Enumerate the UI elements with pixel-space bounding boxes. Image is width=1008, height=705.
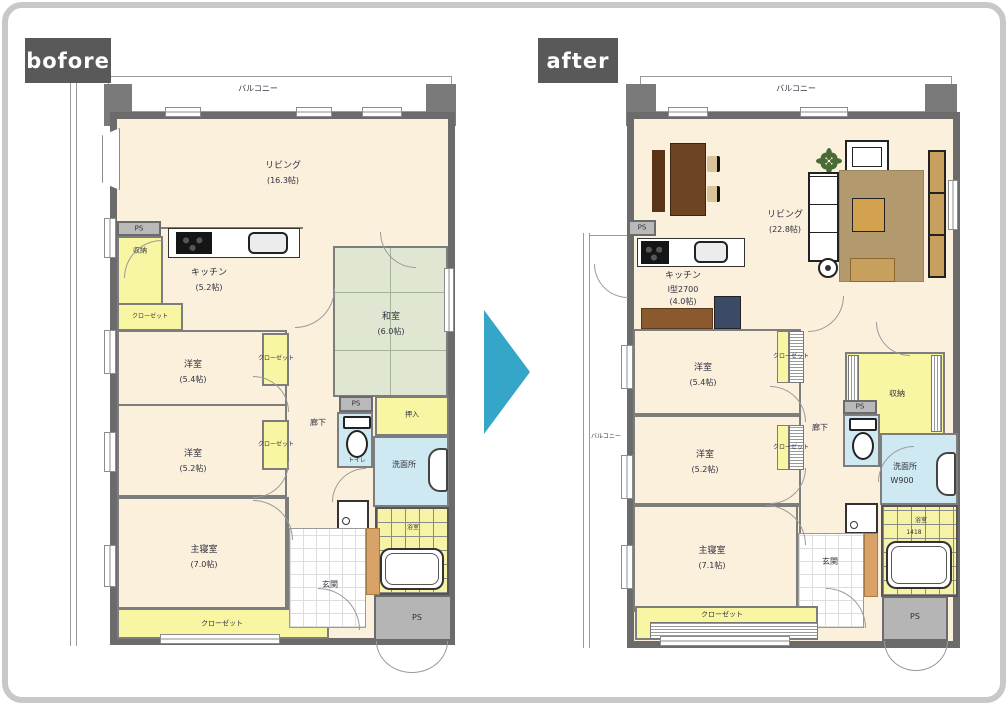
window <box>444 268 454 332</box>
ps-label: PS <box>638 223 647 232</box>
oshiire-label: 押入 <box>405 410 419 419</box>
bedroom1-label: 洋室 <box>184 360 202 372</box>
ps-label: PS <box>352 399 361 408</box>
living-area: (22.8帖) <box>769 225 801 235</box>
window <box>160 634 280 644</box>
living-label: リビング <box>265 161 301 173</box>
chair-icon <box>707 186 720 202</box>
before-badge: bofore <box>25 38 111 83</box>
bedroom2-area: (5.2帖) <box>180 464 207 474</box>
washitsu-label: 和室 <box>382 312 400 324</box>
storage-door-hatch <box>931 355 942 432</box>
kitchen-type: I型2700 <box>668 285 699 295</box>
window <box>296 107 332 117</box>
bay-window <box>102 128 120 190</box>
master-area: (7.0帖) <box>191 560 218 570</box>
window <box>621 345 633 389</box>
sofa-icon <box>808 172 839 262</box>
tatami-line <box>335 292 446 293</box>
bedroom1-area: (5.4帖) <box>180 375 207 385</box>
genkan-step <box>864 533 878 597</box>
kitchen-label: キッチン <box>665 271 701 283</box>
washroom-label: 洗面所 <box>392 460 416 470</box>
armchair-icon <box>845 140 889 174</box>
tatami-line <box>335 350 446 351</box>
ps-label: PS <box>910 612 920 622</box>
robot-vacuum-icon <box>818 258 838 278</box>
closet-label: クローゼット <box>258 441 294 449</box>
closet-label: クローゼット <box>773 353 809 361</box>
closet-label: クローゼット <box>132 313 168 321</box>
toilet-label: トイレ <box>348 457 366 465</box>
washbasin-icon <box>936 452 956 496</box>
kitchen-sink-icon <box>248 232 288 254</box>
bedroom2-label: 洋室 <box>184 449 202 461</box>
refrigerator <box>714 296 741 329</box>
hall-label: 廊下 <box>812 423 828 433</box>
washing-machine-icon <box>337 500 369 530</box>
balcony-rail-connector <box>590 235 627 236</box>
ps-label: PS <box>135 224 144 233</box>
living-label: リビング <box>767 210 803 222</box>
master-label: 主寝室 <box>190 545 217 557</box>
toilet-icon <box>849 418 877 460</box>
window <box>104 330 116 374</box>
toilet-icon <box>343 416 371 458</box>
stove-icon <box>641 241 669 264</box>
bedroom1-label: 洋室 <box>694 363 712 375</box>
ps-label: PS <box>856 402 865 411</box>
window <box>165 107 201 117</box>
window <box>668 107 708 117</box>
kitchen-label: キッチン <box>191 268 227 280</box>
chair-icon <box>707 156 720 172</box>
master-area: (7.1帖) <box>699 561 726 571</box>
bathtub-icon <box>886 541 952 589</box>
washing-machine-icon <box>845 503 878 534</box>
window <box>621 455 633 499</box>
closet-label: クローゼット <box>773 444 809 452</box>
bedroom1-area: (5.4帖) <box>690 378 717 388</box>
storage-label: 収納 <box>889 389 905 399</box>
window <box>660 636 790 646</box>
genkan-label: 玄関 <box>822 557 838 567</box>
bath-label: 浴室 <box>407 524 419 532</box>
transform-arrow-icon <box>484 310 530 434</box>
kitchen-sink-icon <box>694 241 728 263</box>
floor-cushion <box>850 258 895 282</box>
closet-label: クローゼット <box>258 355 294 363</box>
tv-board-icon <box>928 150 946 278</box>
washitsu-area: (6.0帖) <box>378 327 405 337</box>
window <box>362 107 402 117</box>
balcony-label-before: バルコニー <box>238 84 278 94</box>
bedroom2-area: (5.2帖) <box>692 465 719 475</box>
hall-label: 廊下 <box>310 418 326 428</box>
dining-bench-icon <box>652 150 665 212</box>
dining-table-icon <box>670 143 706 216</box>
bath-size: 1418 <box>906 529 921 537</box>
balcony-left-label: バルコニー <box>591 433 621 441</box>
kitchen-area: (5.2帖) <box>196 283 223 293</box>
window <box>104 218 116 258</box>
kitchen-area: (4.0帖) <box>670 297 697 307</box>
balcony-label-after: バルコニー <box>776 84 816 94</box>
washbasin-icon <box>428 448 448 492</box>
window <box>621 545 633 589</box>
window <box>948 180 958 230</box>
window <box>104 545 116 587</box>
closet-label: クローゼット <box>201 619 243 628</box>
after-badge: after <box>538 38 618 83</box>
closet-label: クローゼット <box>701 610 743 619</box>
kitchen-cabinet <box>641 308 713 329</box>
genkan-step <box>366 528 380 595</box>
balcony-rail-left-before <box>70 58 77 646</box>
window <box>104 432 116 472</box>
master-label: 主寝室 <box>698 546 725 558</box>
coffee-table-icon <box>852 198 885 232</box>
bedroom2-label: 洋室 <box>696 450 714 462</box>
ps-label: PS <box>412 613 422 623</box>
bath-label: 浴室 <box>915 517 927 525</box>
bathtub-icon <box>380 548 444 590</box>
stove-icon <box>176 232 212 254</box>
window <box>800 107 848 117</box>
balcony-rail-left-after <box>583 233 590 648</box>
living-area: (16.3帖) <box>267 176 299 186</box>
